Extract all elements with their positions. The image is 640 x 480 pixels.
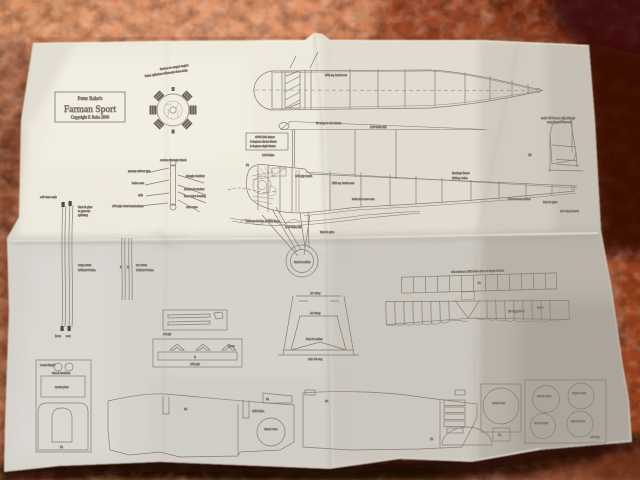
svg-text:Farman Sport: Farman Sport [64,105,116,115]
svg-text:2 mm liteply: 2 mm liteply [40,363,56,367]
svg-text:rear: rear [66,334,71,338]
svg-text:B1: B1 [184,407,188,411]
svg-text:A2 wing: A2 wing [310,311,321,315]
svg-text:1/16 balsa fill: 1/16 balsa fill [285,225,302,229]
svg-text:bind & solder: bind & solder [306,337,323,341]
svg-text:fuselage frame: fuselage frame [452,171,470,175]
svg-text:R: R [127,265,129,269]
svg-text:T1: T1 [477,281,481,285]
svg-text:T1: T1 [498,433,502,437]
svg-text:axle: axle [138,193,144,197]
svg-text:3/32 sq. hatch seat: 3/32 sq. hatch seat [332,181,354,185]
svg-text:S1: S1 [266,397,270,401]
svg-text:F2: F2 [430,437,434,441]
svg-text:A1 wing: A1 wing [310,291,321,295]
svg-text:dacro: dacro [537,305,544,309]
svg-text:bind & glue: bind & glue [320,230,335,234]
svg-text:wing struts: wing struts [78,263,92,267]
svg-text:2 degrees down thrust: 2 degrees down thrust [250,140,277,144]
svg-text:fit wing to u/c datum: fit wing to u/c datum [316,121,342,125]
svg-text:wheel doublers: wheel doublers [52,371,71,375]
svg-text:GWS IPS drives: GWS IPS drives [255,135,276,139]
svg-text:1/64 ply: 1/64 ply [590,435,600,439]
svg-text:front: front [55,334,61,338]
svg-text:Peter Rake's: Peter Rake's [78,97,103,102]
svg-text:wheel outer: wheel outer [534,421,548,425]
svg-text:u/c struts: u/c struts [136,263,148,267]
svg-text:soft wire ends: soft wire ends [40,195,58,199]
svg-text:Simply doubler: Simply doubler [186,174,205,178]
svg-text:1/2 wing dowel: 1/2 wing dowel [560,209,579,213]
svg-text:balsa core: balsa core [132,181,145,185]
svg-text:brass tube bearing: brass tube bearing [184,194,206,198]
svg-text:3/32x1/4 balsa: 3/32x1/4 balsa [78,268,96,272]
svg-text:1/32 balsa: 1/32 balsa [252,409,265,413]
svg-text:card cone: card cone [186,205,198,209]
svg-text:sponge rubber tyre: sponge rubber tyre [128,169,151,173]
svg-text:TE between cables: TE between cables [508,197,531,201]
svg-text:B: B [194,355,196,359]
svg-text:1/32 ply: 1/32 ply [190,362,200,366]
svg-text:wheel outer: wheel outer [572,391,586,395]
svg-text:bind & solder: bind & solder [294,260,311,264]
svg-text:horns: horns [228,344,235,348]
svg-text:3/32sq. balsa: 3/32sq. balsa [452,176,468,180]
svg-text:section through wheel: section through wheel [160,158,187,162]
svg-text:wheel core: wheel core [492,401,506,405]
svg-text:wheel outer: wheel outer [571,419,585,423]
svg-text:hollowed balsa or blue foam: hollowed balsa or blue foam [246,219,281,223]
svg-text:20 ring joiner: 20 ring joiner [508,309,524,313]
svg-text:1/64 ply hatch: 1/64 ply hatch [295,174,313,178]
svg-text:axle 16 swg: axle 16 swg [308,357,323,361]
svg-text:1/32x1/4 balsa: 1/32x1/4 balsa [136,268,154,272]
svg-text:F1: F1 [60,445,64,449]
svg-text:motor plate: motor plate [55,385,69,389]
svg-text:balsa the nose seat: balsa the nose seat [352,197,374,201]
svg-text:bind & glue: bind & glue [543,200,558,204]
svg-text:3/32 sq. hatch rest: 3/32 sq. hatch rest [325,73,347,77]
svg-text:Copyright P. Rake 2006: Copyright P. Rake 2006 [71,115,109,120]
svg-text:1/64 ply outer laminations: 1/64 ply outer laminations [112,204,144,208]
svg-text:2 degrees right thrust: 2 degrees right thrust [250,144,276,148]
svg-text:1/16 balsa: 1/16 balsa [262,153,275,157]
svg-text:splitting: splitting [78,213,88,217]
svg-text:TP: TP [528,153,532,157]
svg-text:1/8 ply: 1/8 ply [163,332,172,336]
svg-text:F1: F1 [246,163,250,167]
svg-text:wheel cone: wheel cone [264,427,278,431]
svg-text:wheel outer: wheel outer [537,394,551,398]
svg-text:1/16 balsa fill: 1/16 balsa fill [370,125,387,129]
svg-text:wng hinges between: wng hinges between [547,120,572,124]
svg-text:B1: B1 [325,399,329,403]
svg-text:archimed washer: archimed washer [184,187,204,191]
